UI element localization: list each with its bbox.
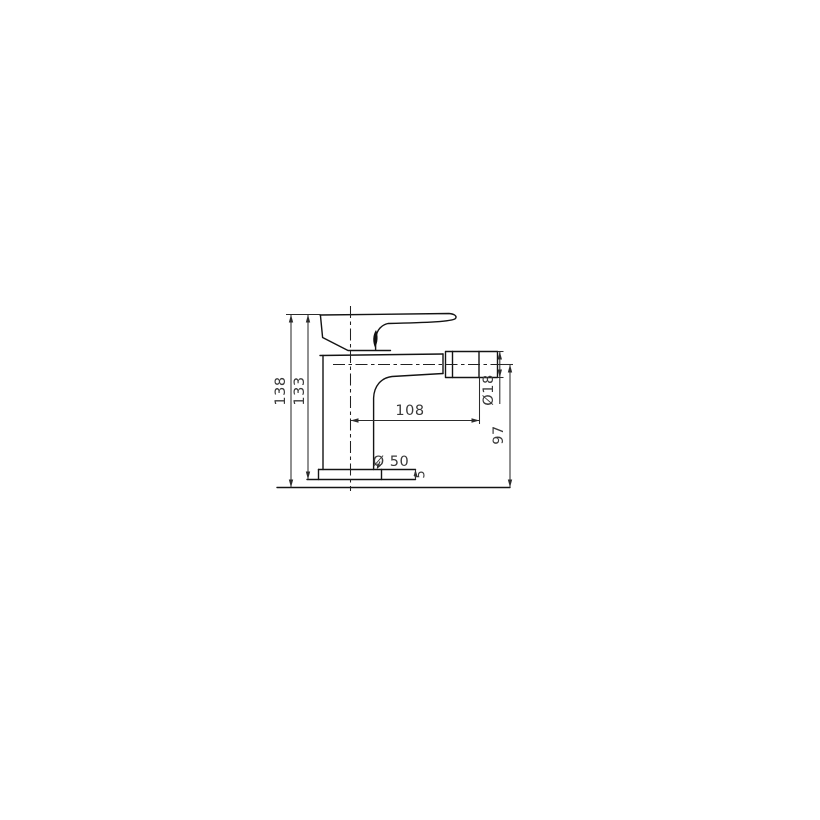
faucet-lever-handle: [320, 314, 456, 351]
spout-top-edge: [320, 354, 443, 356]
dimension-upper-height: 133: [292, 315, 310, 480]
spout-reach-label: 108: [395, 403, 424, 419]
drawing-canvas: 138 133 108: [0, 0, 820, 820]
dimension-spout-reach: 108: [351, 378, 480, 425]
base-diameter-label: Ø 50: [373, 454, 409, 470]
dimension-aerator-diameter: Ø18: [481, 352, 504, 406]
aerator-diameter-label: Ø18: [481, 374, 497, 405]
technical-drawing: 138 133 108: [0, 0, 820, 820]
dimension-base-thickness: 5: [414, 470, 429, 480]
dimensions: 138 133 108: [273, 315, 513, 488]
spout-height-label: 97: [491, 425, 507, 444]
total-height-label: 138: [273, 376, 289, 405]
centerlines: [333, 306, 502, 491]
dimension-total-height: 138: [273, 315, 293, 488]
cartridge-dome: [320, 315, 390, 351]
dimension-base-diameter: Ø 50: [373, 454, 409, 470]
base-thickness-label: 5: [414, 470, 429, 478]
upper-height-label: 133: [292, 376, 308, 405]
